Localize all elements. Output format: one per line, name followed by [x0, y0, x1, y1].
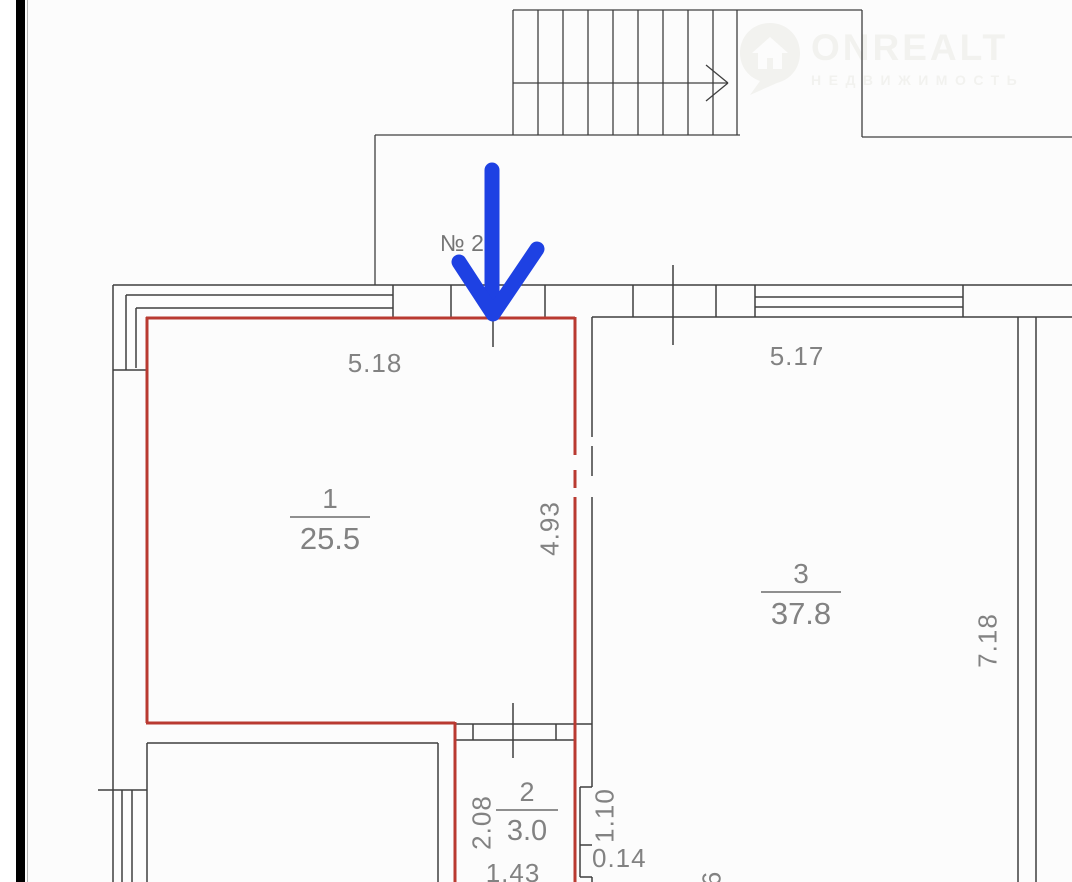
niche-depth-dimension: 0.14 [592, 843, 662, 874]
room1-label: 1 25.5 [288, 484, 372, 555]
room1-top-dimension: 5.18 [305, 348, 445, 379]
room3-area: 37.8 [759, 595, 843, 630]
room2-number: 2 [494, 777, 560, 807]
room1-side-dimension: 4.93 [535, 474, 566, 584]
page-left-margin [0, 0, 16, 882]
floor-plan-canvas: ONREALT НЕДВИЖИМОСТЬ [0, 0, 1072, 882]
room1-number: 1 [288, 484, 372, 514]
partial-edge-dimension: 6 [697, 859, 728, 882]
unit-number-label: № 2 [440, 230, 484, 257]
page-edge-bar [16, 0, 25, 882]
room3-number: 3 [759, 559, 843, 589]
room1-fraction-line [290, 516, 370, 518]
room2-label: 2 3.0 [494, 777, 560, 848]
room3-side-dimension: 7.18 [973, 586, 1004, 696]
page-edge-line [27, 0, 28, 882]
plan-drawing [0, 0, 1072, 882]
room3-top-dimension: 5.17 [727, 341, 867, 372]
room2-area: 3.0 [494, 813, 560, 848]
room3-label: 3 37.8 [759, 559, 843, 630]
room3-fraction-line [761, 591, 841, 593]
room1-area: 25.5 [288, 520, 372, 555]
room2-fraction-line [496, 809, 558, 811]
room2-bottom-dimension: 1.43 [473, 858, 553, 882]
outer-and-interior-walls [98, 265, 1072, 882]
